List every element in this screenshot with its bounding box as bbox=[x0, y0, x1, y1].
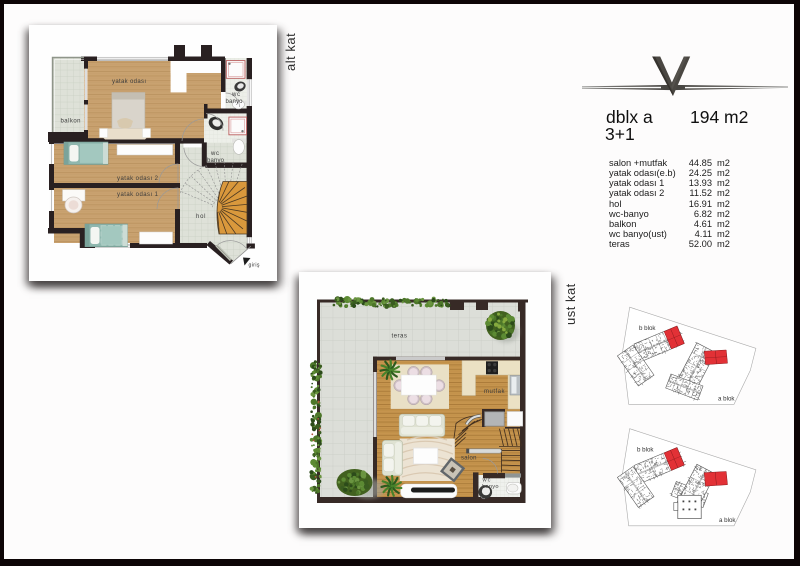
svg-text:banyo: banyo bbox=[207, 158, 225, 164]
svg-text:giriş: giriş bbox=[249, 263, 260, 269]
svg-text:a blok: a blok bbox=[719, 517, 736, 524]
svg-text:salon: salon bbox=[461, 456, 477, 462]
svg-text:yatak odası 1: yatak odası 1 bbox=[117, 192, 159, 198]
svg-text:balkon: balkon bbox=[61, 119, 81, 125]
svg-text:banyo: banyo bbox=[226, 99, 244, 105]
svg-text:a blok: a blok bbox=[718, 396, 735, 403]
svg-text:wc: wc bbox=[210, 151, 219, 157]
svg-text:b blok: b blok bbox=[639, 325, 656, 332]
svg-text:yatak odası 2: yatak odası 2 bbox=[117, 176, 159, 182]
svg-text:mutfak: mutfak bbox=[484, 389, 506, 395]
svg-text:wc: wc bbox=[482, 478, 491, 484]
svg-text:hol: hol bbox=[196, 214, 206, 220]
svg-text:banyo: banyo bbox=[482, 484, 499, 490]
svg-text:b blok: b blok bbox=[637, 447, 654, 454]
svg-text:wc: wc bbox=[231, 92, 240, 98]
svg-text:teras: teras bbox=[392, 333, 408, 340]
svg-text:yatak odası: yatak odası bbox=[112, 79, 146, 85]
